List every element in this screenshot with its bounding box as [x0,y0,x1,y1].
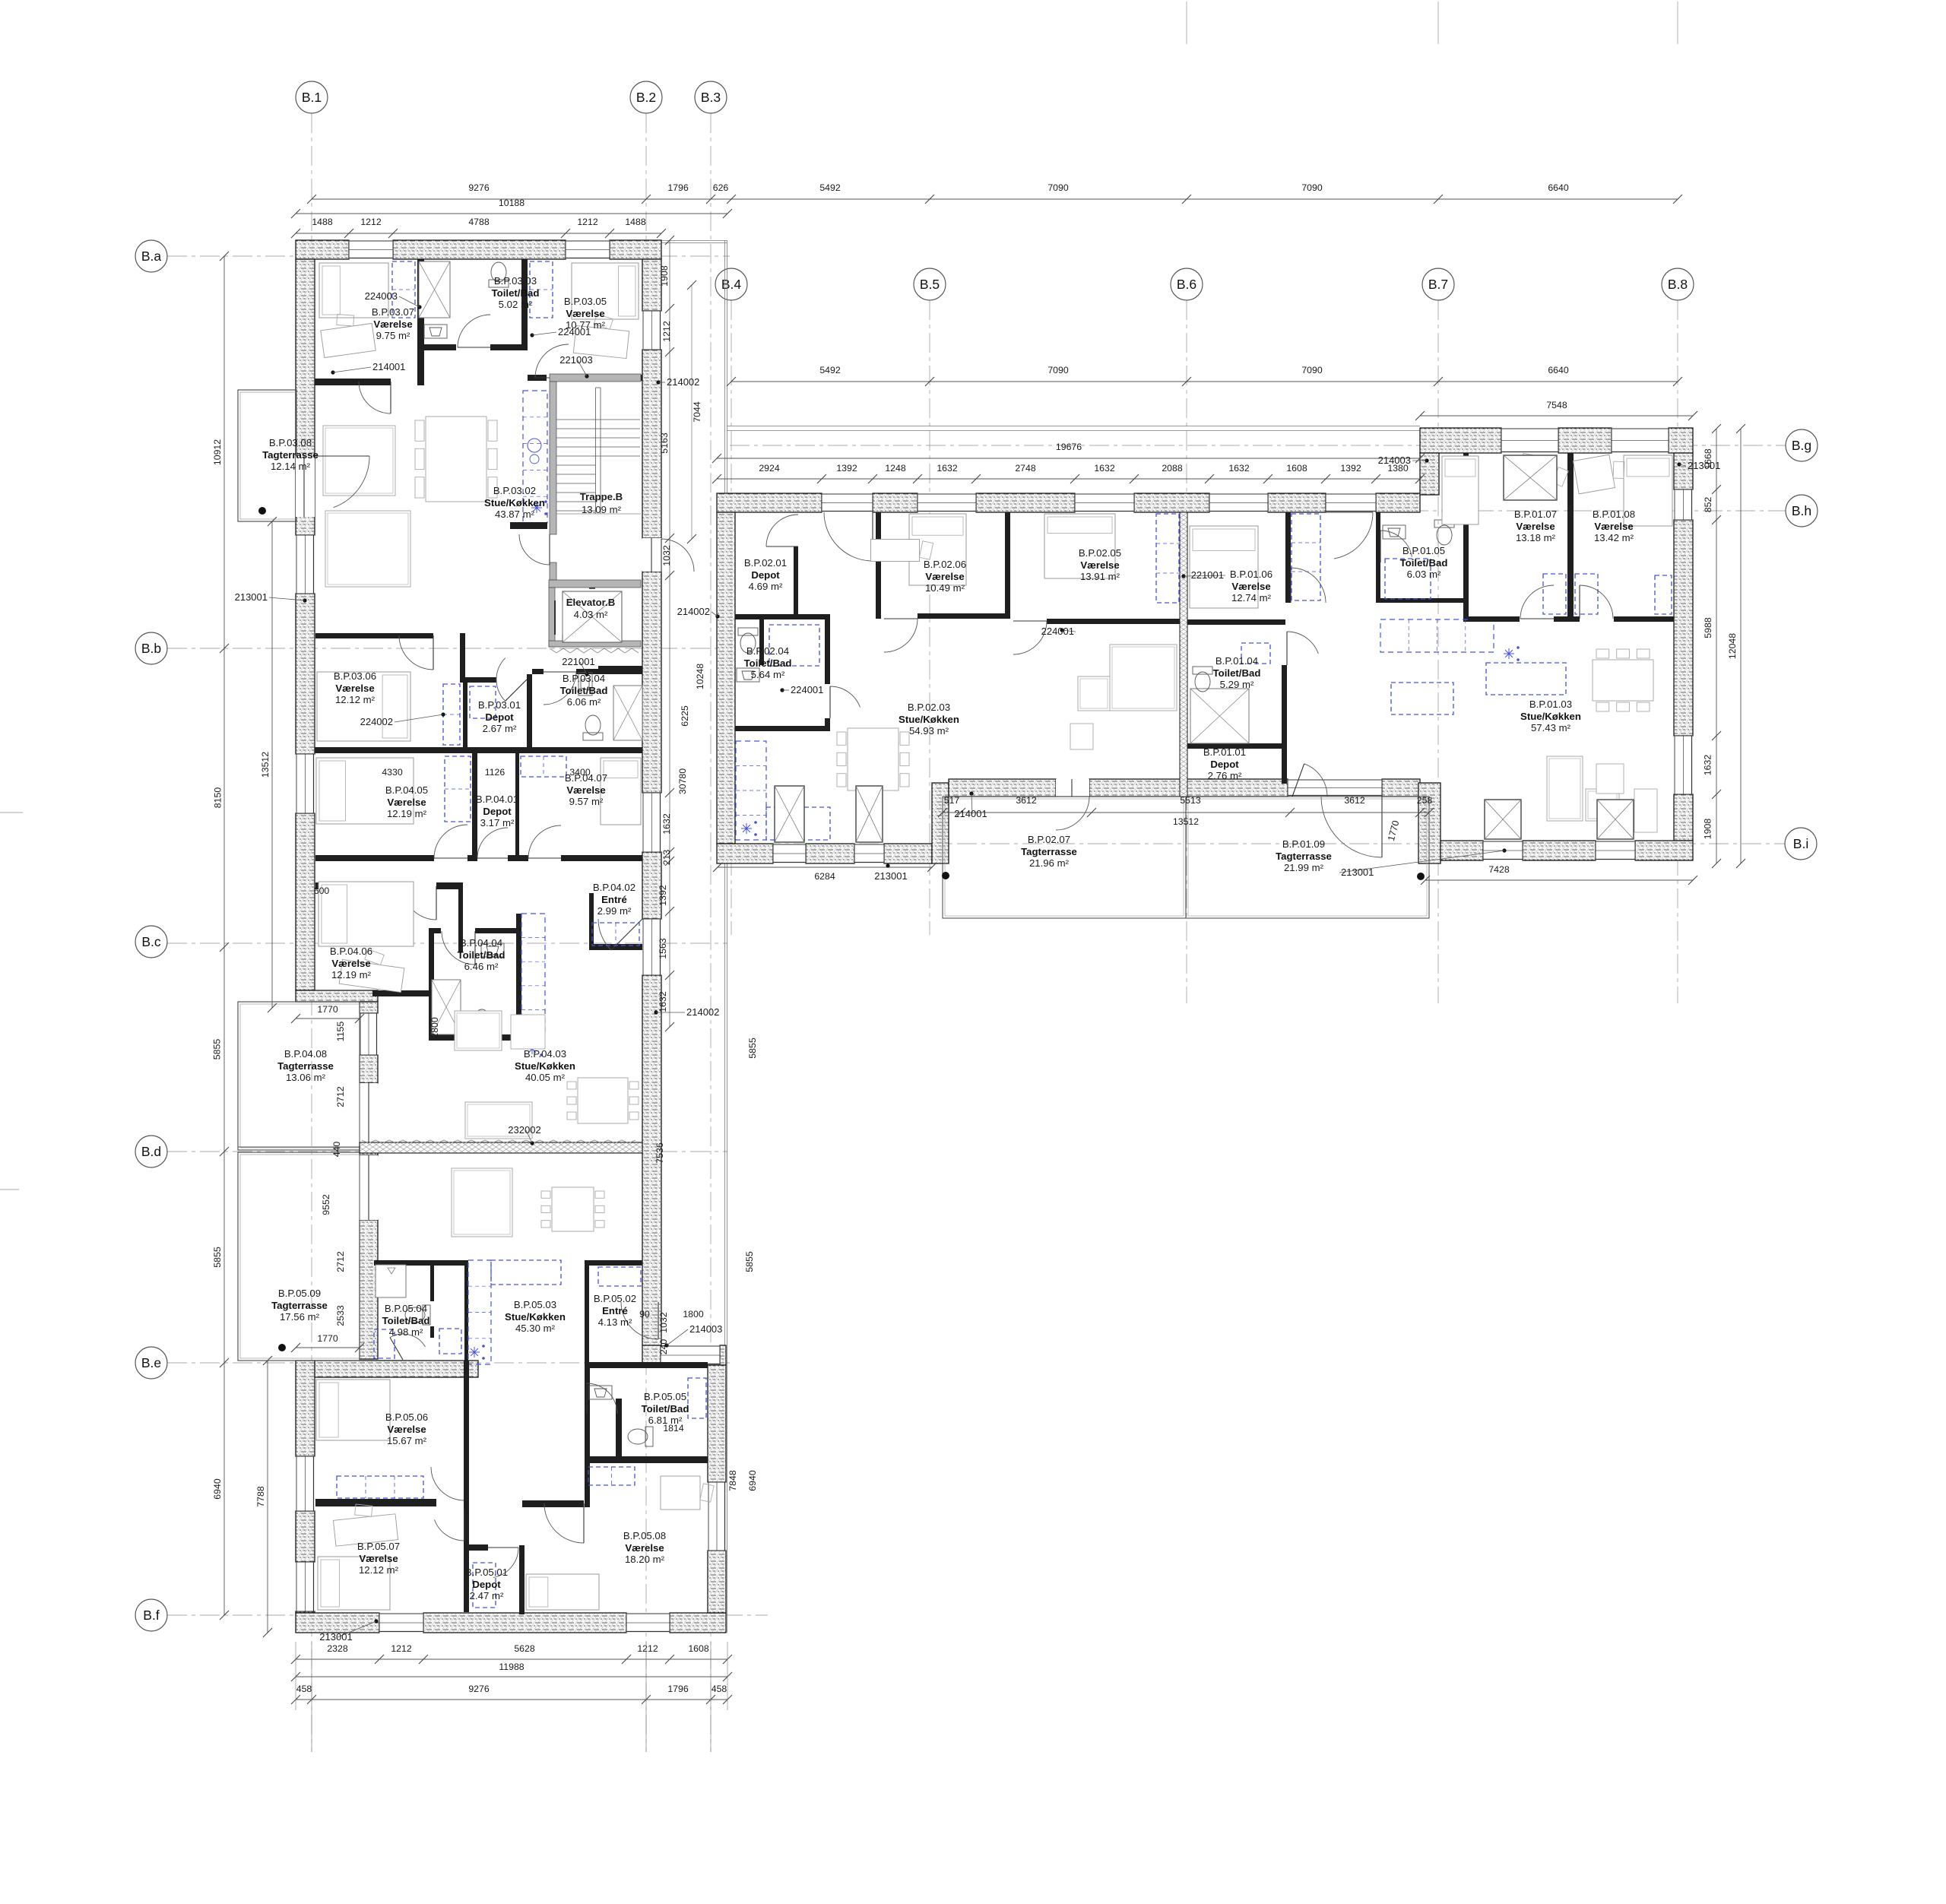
svg-text:258: 258 [1417,795,1433,806]
svg-text:1770: 1770 [317,1333,338,1344]
svg-text:224001: 224001 [1041,626,1074,637]
svg-text:9.57 m²: 9.57 m² [569,796,604,807]
svg-text:3612: 3612 [1344,795,1365,806]
svg-text:1814: 1814 [663,1423,684,1434]
svg-text:B.P.05.07: B.P.05.07 [357,1541,400,1552]
svg-text:45.30 m²: 45.30 m² [515,1323,556,1334]
svg-text:12.19 m²: 12.19 m² [331,969,372,981]
svg-text:4.69 m²: 4.69 m² [749,581,783,592]
svg-text:Trappe.B: Trappe.B [580,491,623,502]
svg-text:2712: 2712 [335,1086,346,1107]
svg-text:Værelse: Værelse [387,1424,426,1435]
svg-text:221001: 221001 [562,656,594,667]
svg-text:Værelse: Værelse [566,784,605,796]
svg-text:10248: 10248 [695,664,705,689]
svg-text:Toilet/Bad: Toilet/Bad [382,1315,430,1326]
svg-text:B.P.05.03: B.P.05.03 [514,1299,556,1310]
svg-text:Tagterrasse: Tagterrasse [1276,851,1332,862]
svg-text:B.P.02.05: B.P.02.05 [1079,547,1121,559]
svg-text:57.43 m²: 57.43 m² [1531,722,1571,733]
svg-text:B.P.03.03: B.P.03.03 [494,275,537,287]
svg-text:B.P.01.06: B.P.01.06 [1230,569,1273,580]
svg-text:Tagterrasse: Tagterrasse [262,449,319,461]
svg-text:221003: 221003 [559,354,592,366]
svg-text:224002: 224002 [360,716,393,727]
svg-text:7548: 7548 [1546,400,1567,410]
svg-text:B.7: B.7 [1428,277,1448,292]
svg-text:213001: 213001 [874,870,907,882]
svg-text:B.P.03.01: B.P.03.01 [478,699,521,711]
svg-text:Depot: Depot [485,711,514,723]
svg-text:B.P.04.04: B.P.04.04 [460,937,502,949]
svg-text:8150: 8150 [213,787,223,809]
svg-text:5513: 5513 [1180,795,1201,806]
svg-text:7788: 7788 [255,1486,266,1507]
svg-text:Værelse: Værelse [373,318,412,330]
svg-text:213001: 213001 [319,1631,352,1643]
svg-text:214003: 214003 [1378,455,1411,466]
svg-text:Toilet/Bad: Toilet/Bad [1400,557,1448,569]
svg-text:Værelse: Værelse [1231,581,1270,592]
svg-text:Stue/Køkken: Stue/Køkken [899,714,959,725]
svg-text:Værelse: Værelse [335,683,374,694]
svg-text:Tagterrasse: Tagterrasse [1021,846,1077,857]
svg-text:1800: 1800 [683,1309,704,1319]
svg-text:5628: 5628 [514,1643,535,1654]
svg-text:B.P.02.06: B.P.02.06 [924,559,966,570]
svg-text:1126: 1126 [485,767,506,778]
svg-text:6284: 6284 [814,871,835,882]
svg-text:13.09 m²: 13.09 m² [582,504,622,515]
svg-text:B.5: B.5 [920,277,940,292]
svg-text:7428: 7428 [1488,864,1510,875]
svg-text:B.P.01.07: B.P.01.07 [1514,508,1557,520]
svg-text:600: 600 [314,885,330,896]
svg-text:B.a: B.a [141,249,162,264]
svg-text:Stue/Køkken: Stue/Køkken [505,1311,566,1323]
svg-text:1212: 1212 [360,217,382,227]
svg-text:5.29 m²: 5.29 m² [1220,679,1254,690]
svg-text:5855: 5855 [212,1247,223,1268]
svg-text:21.96 m²: 21.96 m² [1029,857,1070,869]
svg-text:1632: 1632 [661,813,672,835]
svg-text:10912: 10912 [212,439,223,465]
svg-text:Værelse: Værelse [925,571,964,582]
svg-text:5855: 5855 [747,1038,758,1059]
svg-text:B.h: B.h [1792,503,1811,518]
svg-text:12048: 12048 [1727,633,1738,659]
svg-text:Værelse: Værelse [566,308,604,319]
svg-text:5988: 5988 [1703,617,1713,638]
svg-text:B.P.04.03: B.P.04.03 [524,1048,566,1060]
svg-text:Stue/Køkken: Stue/Køkken [1520,711,1581,722]
svg-text:Elevator.B: Elevator.B [566,597,616,608]
svg-text:B.c: B.c [141,934,161,949]
svg-text:214002: 214002 [686,1006,719,1018]
svg-text:1632: 1632 [1094,463,1115,474]
svg-text:4.98 m²: 4.98 m² [389,1326,423,1338]
svg-text:B.P.02.01: B.P.02.01 [744,557,787,569]
svg-text:2328: 2328 [327,1643,348,1654]
svg-text:7090: 7090 [1301,182,1323,193]
svg-text:1392: 1392 [658,885,668,906]
svg-text:10188: 10188 [499,198,525,208]
svg-text:3612: 3612 [1016,795,1037,806]
svg-text:1908: 1908 [659,265,670,287]
svg-text:13.06 m²: 13.06 m² [286,1072,326,1083]
svg-text:852: 852 [1703,497,1713,513]
svg-text:6.03 m²: 6.03 m² [1407,569,1441,580]
svg-text:90: 90 [639,1309,650,1319]
svg-text:Værelse: Værelse [1080,559,1119,571]
svg-text:1212: 1212 [637,1643,658,1654]
svg-text:19676: 19676 [1056,442,1082,452]
svg-text:11988: 11988 [499,1662,524,1672]
svg-text:B.P.01.09: B.P.01.09 [1282,838,1325,850]
svg-text:6940: 6940 [747,1470,758,1491]
svg-text:7848: 7848 [727,1470,738,1491]
svg-text:1632: 1632 [937,463,958,474]
svg-text:Tagterrasse: Tagterrasse [271,1300,328,1311]
svg-text:B.P.05.04: B.P.05.04 [385,1303,427,1314]
svg-text:213: 213 [661,850,672,866]
svg-text:440: 440 [331,1142,342,1158]
svg-text:224003: 224003 [365,290,398,302]
svg-text:7090: 7090 [1301,365,1323,375]
svg-text:Depot: Depot [483,806,512,817]
svg-text:1248: 1248 [885,463,906,474]
svg-text:224001: 224001 [558,326,591,337]
svg-text:B.3: B.3 [701,90,721,105]
svg-text:B.P.03.06: B.P.03.06 [334,670,376,682]
svg-text:B.P.04.05: B.P.04.05 [385,784,428,796]
svg-text:B.P.04.06: B.P.04.06 [330,946,372,957]
svg-text:626: 626 [713,182,729,193]
svg-text:1632: 1632 [658,991,668,1012]
svg-text:1488: 1488 [625,217,646,227]
svg-text:12.12 m²: 12.12 m² [335,694,376,705]
svg-text:Værelse: Værelse [331,958,370,969]
svg-text:4788: 4788 [468,217,490,227]
svg-text:B.P.02.07: B.P.02.07 [1028,834,1070,845]
svg-text:13.18 m²: 13.18 m² [1516,532,1556,543]
svg-text:3.17 m²: 3.17 m² [480,817,515,828]
svg-text:B.d: B.d [141,1144,161,1159]
svg-text:12.14 m²: 12.14 m² [271,461,311,472]
svg-text:1392: 1392 [836,463,857,474]
svg-text:13.42 m²: 13.42 m² [1594,532,1634,543]
svg-text:B.b: B.b [141,641,161,656]
svg-text:232002: 232002 [508,1124,540,1136]
svg-text:517: 517 [944,795,960,806]
svg-text:1908: 1908 [1703,819,1713,840]
svg-text:Toilet/Bad: Toilet/Bad [744,657,792,669]
svg-text:2800: 2800 [429,1017,440,1038]
svg-text:1608: 1608 [688,1643,709,1654]
svg-text:6.46 m²: 6.46 m² [464,961,499,972]
svg-text:43.87 m²: 43.87 m² [495,508,535,520]
svg-text:9276: 9276 [468,182,490,193]
svg-text:B.P.03.05: B.P.03.05 [564,296,607,307]
svg-text:5163: 5163 [659,432,670,454]
svg-text:5492: 5492 [819,182,841,193]
svg-text:40.05 m²: 40.05 m² [525,1072,566,1083]
svg-text:13.91 m²: 13.91 m² [1080,571,1120,582]
svg-text:13512: 13512 [1173,816,1199,827]
svg-text:B.i: B.i [1793,836,1808,851]
svg-text:5.02 m²: 5.02 m² [499,299,533,310]
svg-text:21.99 m²: 21.99 m² [1284,862,1324,873]
svg-text:213001: 213001 [1341,866,1374,878]
svg-text:Toilet/Bad: Toilet/Bad [560,685,608,696]
svg-text:13512: 13512 [260,752,271,778]
svg-text:Værelse: Værelse [1594,521,1633,532]
svg-text:214002: 214002 [677,606,710,617]
svg-text:Depot: Depot [1210,759,1239,770]
svg-text:3400: 3400 [569,767,591,778]
svg-text:B.P.03.04: B.P.03.04 [563,673,605,684]
svg-text:Værelse: Værelse [1516,521,1555,532]
svg-text:Værelse: Værelse [625,1542,664,1554]
svg-text:4330: 4330 [382,767,403,778]
svg-text:1770: 1770 [317,1004,338,1015]
svg-text:B.6: B.6 [1177,277,1196,292]
svg-text:B.P.01.01: B.P.01.01 [1203,746,1246,758]
svg-text:B.P.04.01: B.P.04.01 [476,794,518,805]
svg-text:1392: 1392 [1340,463,1361,474]
svg-text:1796: 1796 [667,182,689,193]
svg-text:5492: 5492 [819,365,841,375]
svg-text:1488: 1488 [312,217,333,227]
svg-text:B.P.01.03: B.P.01.03 [1529,699,1572,710]
svg-text:224001: 224001 [791,684,823,695]
svg-text:4.03 m²: 4.03 m² [574,609,608,620]
svg-text:12.12 m²: 12.12 m² [359,1564,399,1576]
svg-text:5855: 5855 [744,1251,755,1272]
svg-text:10.49 m²: 10.49 m² [925,582,965,594]
svg-text:B.P.05.01: B.P.05.01 [465,1567,508,1578]
svg-text:1212: 1212 [391,1643,412,1654]
svg-text:2.67 m²: 2.67 m² [483,723,517,734]
svg-text:1212: 1212 [577,217,598,227]
svg-text:B.P.04.08: B.P.04.08 [284,1048,327,1060]
svg-text:Stue/Køkken: Stue/Køkken [484,497,545,508]
svg-text:7090: 7090 [1047,182,1069,193]
svg-text:1032: 1032 [658,1312,669,1333]
svg-text:6940: 6940 [212,1478,223,1500]
svg-text:6640: 6640 [1548,365,1569,375]
svg-text:B.P.05.02: B.P.05.02 [594,1293,636,1304]
svg-text:1212: 1212 [661,321,672,342]
svg-text:Entré: Entré [601,894,627,905]
svg-text:5.64 m²: 5.64 m² [751,669,785,680]
svg-text:6640: 6640 [1548,182,1569,193]
svg-text:1632: 1632 [1228,463,1250,474]
svg-text:B.e: B.e [141,1355,161,1370]
svg-text:9276: 9276 [468,1684,490,1694]
svg-text:B.P.01.08: B.P.01.08 [1593,508,1635,520]
svg-text:B.P.05.09: B.P.05.09 [278,1288,321,1299]
svg-text:B.8: B.8 [1668,277,1688,292]
svg-text:458: 458 [712,1684,727,1694]
svg-text:214002: 214002 [667,376,699,388]
svg-text:214003: 214003 [689,1323,722,1335]
svg-text:Toilet/Bad: Toilet/Bad [642,1403,689,1415]
svg-text:1155: 1155 [335,1022,346,1042]
svg-text:Stue/Køkken: Stue/Køkken [515,1060,575,1072]
svg-text:1608: 1608 [1286,463,1307,474]
svg-text:17.56 m²: 17.56 m² [280,1311,320,1323]
svg-text:B.P.03.02: B.P.03.02 [493,485,536,496]
svg-text:B.g: B.g [1792,438,1811,453]
svg-text:B.P.05.06: B.P.05.06 [385,1411,428,1423]
svg-text:4.13 m²: 4.13 m² [598,1316,632,1328]
svg-text:54.93 m²: 54.93 m² [909,725,949,737]
svg-text:B.1: B.1 [302,90,322,105]
svg-text:15.67 m²: 15.67 m² [387,1435,427,1446]
svg-text:Toilet/Bad: Toilet/Bad [492,287,540,299]
svg-text:B.2: B.2 [636,90,656,105]
svg-text:7090: 7090 [1047,365,1069,375]
svg-text:B.P.03.07: B.P.03.07 [372,306,414,318]
svg-text:Toilet/Bad: Toilet/Bad [1213,667,1261,679]
svg-text:2712: 2712 [335,1251,346,1272]
svg-text:Entré: Entré [602,1305,628,1316]
svg-text:7536: 7536 [654,1142,665,1164]
svg-text:B.P.04.02: B.P.04.02 [593,882,635,893]
svg-text:B.f: B.f [143,1608,160,1623]
svg-text:1632: 1632 [1703,755,1713,776]
svg-text:B.P.05.08: B.P.05.08 [623,1530,666,1541]
svg-text:9.75 m²: 9.75 m² [376,330,410,341]
svg-text:1796: 1796 [667,1684,689,1694]
svg-text:Toilet/Bad: Toilet/Bad [458,949,506,961]
svg-text:6225: 6225 [680,705,690,727]
svg-text:12.19 m²: 12.19 m² [387,808,427,819]
svg-text:1563: 1563 [658,938,668,959]
svg-text:9552: 9552 [321,1194,331,1215]
svg-text:Depot: Depot [751,569,780,581]
svg-text:B.P.02.03: B.P.02.03 [908,702,950,713]
svg-text:2533: 2533 [335,1305,346,1326]
svg-text:2748: 2748 [1015,463,1036,474]
svg-text:12.74 m²: 12.74 m² [1231,592,1272,604]
svg-text:1032: 1032 [661,545,672,566]
svg-text:6.06 m²: 6.06 m² [567,696,601,708]
svg-text:B.P.01.04: B.P.01.04 [1215,655,1258,667]
svg-text:B.P.03.08: B.P.03.08 [269,437,312,448]
svg-text:Værelse: Værelse [387,797,426,808]
svg-text:18.20 m²: 18.20 m² [625,1554,665,1565]
svg-text:2.76 m²: 2.76 m² [1208,770,1242,781]
svg-text:213001: 213001 [235,591,268,603]
svg-text:221001: 221001 [1191,569,1224,581]
svg-text:5855: 5855 [212,1039,223,1060]
svg-text:B.P.02.04: B.P.02.04 [746,645,789,657]
svg-text:2.99 m²: 2.99 m² [597,905,632,917]
svg-text:B.P.05.05: B.P.05.05 [644,1391,686,1402]
svg-text:Værelse: Værelse [359,1553,398,1564]
svg-text:30780: 30780 [677,768,688,794]
svg-text:2924: 2924 [759,463,780,474]
svg-text:B.4: B.4 [721,277,742,292]
svg-text:Tagterrasse: Tagterrasse [277,1060,334,1072]
svg-text:214001: 214001 [372,361,405,372]
svg-text:214001: 214001 [954,808,987,819]
svg-text:2088: 2088 [1162,463,1183,474]
svg-text:Depot: Depot [472,1579,501,1590]
svg-text:458: 458 [296,1684,312,1694]
svg-text:213001: 213001 [1688,460,1720,471]
svg-text:7044: 7044 [692,401,702,423]
svg-text:B.P.01.05: B.P.01.05 [1402,545,1445,556]
svg-text:2.47 m²: 2.47 m² [470,1590,504,1601]
